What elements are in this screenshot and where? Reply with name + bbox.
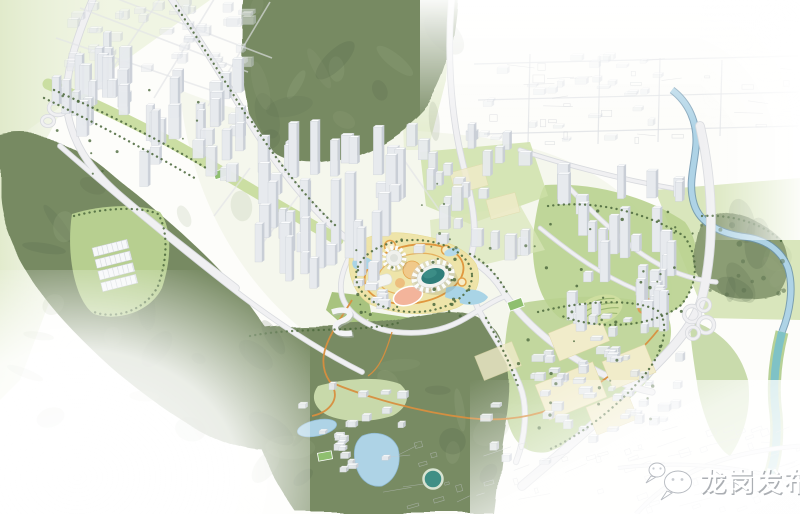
watermark-text: 龙岗发布: [700, 467, 800, 498]
masterplan-screenshot: 龙岗发布 龙岗发布: [0, 0, 800, 514]
masterplan-rendering: 龙岗发布 龙岗发布: [0, 0, 800, 514]
